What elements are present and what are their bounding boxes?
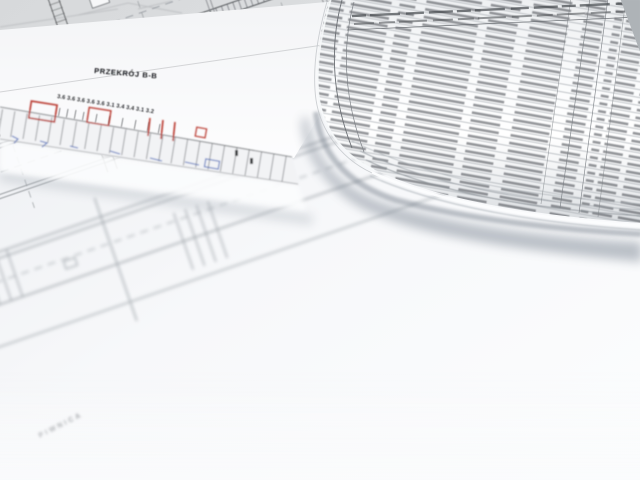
- photo-canvas: PIWNICA PRZEKRÓJ B-B 3.6 3.6 3.6 3.6 3.6…: [0, 0, 640, 480]
- depth-blur-wash: [0, 390, 640, 480]
- blueprint-photo: PIWNICA PRZEKRÓJ B-B 3.6 3.6 3.6 3.6 3.6…: [0, 0, 640, 480]
